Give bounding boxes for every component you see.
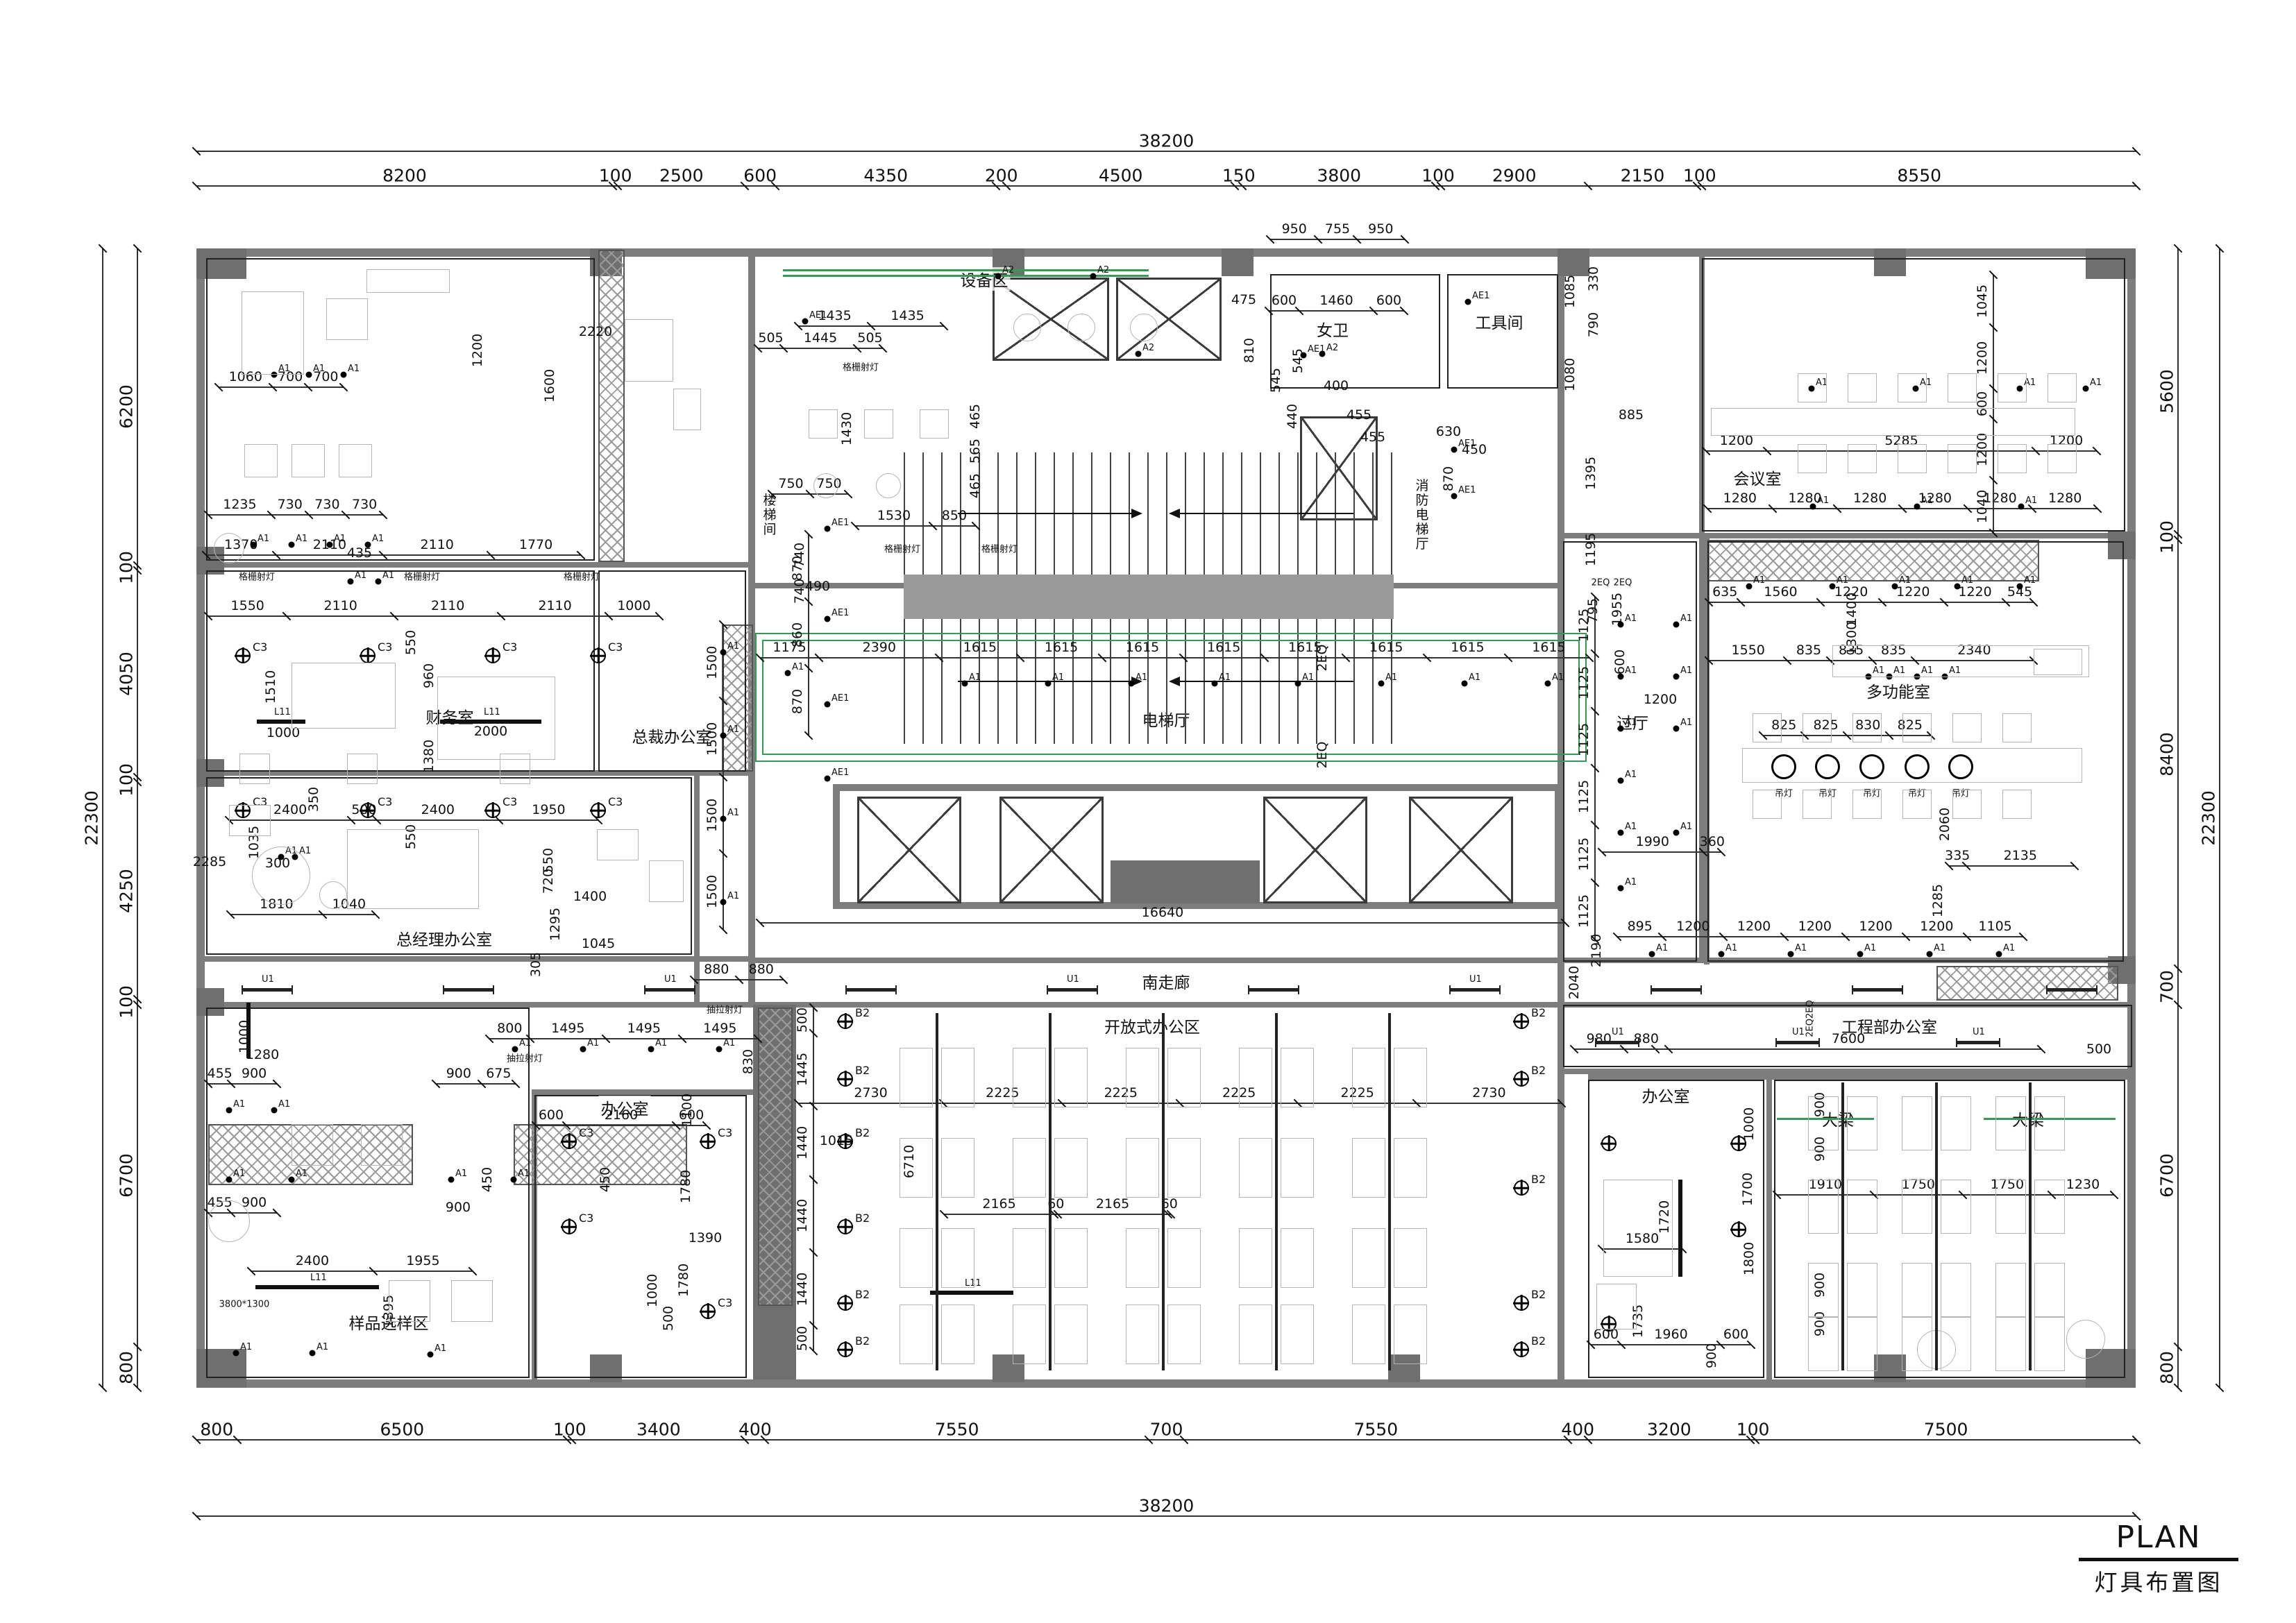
dim-label: 1500	[704, 799, 720, 832]
dim-label: 1615	[1532, 640, 1565, 655]
desk	[1167, 1305, 1201, 1364]
A1-light-icon	[1955, 584, 1961, 590]
wall-segment	[196, 248, 205, 1388]
dim-line	[1574, 1048, 1669, 1050]
desk	[1352, 1228, 1385, 1288]
desk	[1281, 1138, 1314, 1198]
dim-line	[808, 534, 809, 736]
light-code-label: C3	[503, 795, 517, 808]
loose-dim-label: 格栅射灯	[843, 360, 879, 373]
dim-label: 3400	[636, 1420, 681, 1440]
dim-line	[2219, 248, 2220, 1388]
dim-label: 1955	[406, 1253, 439, 1268]
desk	[1239, 1048, 1272, 1107]
strip-light-label: U1	[1973, 1027, 1985, 1037]
desk	[1847, 1180, 1877, 1234]
light-code-label: A1	[1753, 575, 1765, 586]
dim-label: 455	[207, 1066, 232, 1081]
AE1-light-icon	[825, 776, 831, 782]
dim-label: 1125	[1576, 894, 1592, 928]
chair	[2002, 713, 2032, 742]
A1-light-icon	[720, 733, 727, 739]
chair	[1898, 373, 1927, 402]
loose-dim-label: 1295	[548, 908, 563, 941]
furniture	[500, 754, 530, 784]
AE1-light-icon	[825, 526, 831, 532]
chair	[1848, 444, 1877, 473]
desk	[1808, 1180, 1839, 1234]
downlight-light-icon	[1731, 1136, 1746, 1151]
shaft-xbox	[857, 797, 961, 903]
chair	[2002, 790, 2032, 819]
B2-light-icon	[838, 1014, 853, 1029]
chair	[1753, 790, 1782, 819]
light-code-label: C3	[579, 1212, 593, 1225]
strip-light-icon	[444, 988, 493, 992]
dim-label: 800	[200, 1420, 233, 1440]
dim-label: 100	[2157, 520, 2177, 554]
dim-label: 6200	[117, 384, 137, 429]
light-code-label: B2	[855, 1006, 870, 1019]
furniture	[451, 1280, 493, 1322]
room-label: 总裁办公室	[630, 724, 714, 747]
dim-line	[1591, 1344, 1751, 1345]
chair	[1952, 790, 1982, 819]
loose-dim-label: 720	[541, 869, 556, 894]
dim-label: 1040	[1975, 490, 1990, 523]
light-code-label: A1	[727, 724, 739, 735]
chair	[1902, 790, 1932, 819]
wall-segment	[196, 1379, 2136, 1388]
dim-label: 1200	[1737, 919, 1771, 934]
dim-label: 1550	[1732, 643, 1765, 658]
dim-label: 1105	[1978, 919, 2011, 934]
loose-dim-label: 455	[1347, 407, 1371, 423]
dim-label: 1500	[704, 722, 720, 756]
light-code-label: A1	[1725, 943, 1737, 953]
furniture	[1742, 748, 2082, 783]
furniture	[292, 1124, 333, 1166]
A1-light-icon	[289, 1177, 295, 1183]
strip-light-label: U1	[1792, 1027, 1805, 1037]
C3-light-icon	[485, 648, 500, 663]
A1-light-icon	[1830, 584, 1836, 590]
dim-line	[758, 348, 883, 349]
light-code-label: A2	[1097, 265, 1109, 275]
A1-light-icon	[375, 579, 382, 585]
dim-label: 2730	[1472, 1085, 1505, 1101]
C3-light-icon	[360, 648, 375, 663]
light-code-label: B2	[1531, 1064, 1546, 1077]
light-code-label: B2	[855, 1288, 870, 1301]
chair	[2048, 373, 2077, 402]
chair	[1753, 713, 1782, 742]
dim-label: 1200	[1975, 433, 1990, 466]
dim-label: 100	[553, 1420, 586, 1440]
vertical-room-label: 消防电梯厅	[1412, 479, 1431, 552]
loose-dim-label: 500	[2086, 1042, 2111, 1057]
dim-label: 1495	[551, 1021, 584, 1036]
loose-dim-label: 885	[1619, 407, 1644, 423]
wall-segment	[694, 774, 700, 1003]
B2-light-icon	[1514, 1295, 1529, 1311]
chair	[1848, 373, 1877, 402]
desk	[2034, 1317, 2065, 1371]
light-code-label: AE1	[832, 693, 849, 704]
dim-label: 1200	[1975, 341, 1990, 375]
loose-dim-label: 500	[661, 1306, 676, 1331]
loose-dim-label: 抽拉射灯	[507, 1051, 543, 1064]
dim-label: 1125	[1576, 723, 1592, 756]
loose-dim-label: 2EQ	[1614, 578, 1632, 588]
dim-label: 800	[117, 1351, 137, 1384]
light-code-label: AE1	[1472, 291, 1489, 301]
loose-dim-label: 3800*1300	[219, 1300, 270, 1310]
dim-label: 8550	[1897, 166, 1941, 186]
title-block: PLAN 灯具布置图	[2075, 1520, 2242, 1597]
light-code-label: AE1	[1458, 439, 1476, 449]
desk	[1394, 1305, 1427, 1364]
dim-label: 2500	[659, 166, 704, 186]
light-code-label: A1	[355, 570, 366, 581]
B2-light-icon	[1514, 1342, 1529, 1357]
dim-label: 1200	[1676, 919, 1710, 934]
strip-light-icon	[847, 988, 895, 992]
A1-light-icon	[2083, 386, 2089, 392]
desk	[1847, 1263, 1877, 1317]
C3-light-icon	[591, 648, 606, 663]
chair	[1852, 790, 1882, 819]
light-code-label: A1	[723, 1038, 735, 1048]
loose-dim-label: 1100	[679, 1094, 695, 1127]
light-code-label: B2	[855, 1064, 870, 1077]
light-code-label: A1	[278, 1099, 290, 1110]
B2-light-icon	[1514, 1014, 1529, 1029]
dim-label: 730	[278, 497, 303, 512]
dim-label: 100	[599, 166, 632, 186]
loose-dim-label: 1000	[645, 1274, 660, 1307]
A1-light-icon	[1649, 951, 1655, 958]
A1-light-icon	[720, 899, 727, 906]
light-code-label: A1	[1469, 672, 1480, 683]
A1-light-icon	[310, 1350, 316, 1357]
A1-light-icon	[1927, 951, 1933, 958]
desk	[1941, 1263, 1971, 1317]
dim-label: 1440	[795, 1273, 810, 1306]
wall-segment	[532, 1089, 753, 1095]
room-label: 总经理办公室	[394, 926, 494, 950]
loose-dim-label: 960	[421, 663, 437, 688]
desk	[1995, 1096, 2026, 1150]
dim-label: 4250	[117, 869, 137, 913]
desk	[1281, 1305, 1314, 1364]
dim-label: 400	[1561, 1420, 1594, 1440]
A1-light-icon	[233, 1350, 239, 1357]
dim-line	[102, 248, 103, 1388]
dim-label: 200	[985, 166, 1018, 186]
linear-light-icon	[255, 1285, 379, 1289]
dim-label: 1445	[804, 330, 837, 346]
wall-segment	[196, 248, 2136, 257]
light-code-label: A1	[1552, 672, 1564, 683]
stair-arrowhead	[1131, 509, 1142, 518]
A1-light-icon	[1857, 951, 1864, 958]
furniture	[361, 1124, 403, 1166]
dim-label: 900	[242, 1066, 267, 1081]
loose-dim-label: 450	[598, 1167, 613, 1192]
light-code-label: A1	[727, 641, 739, 652]
desk	[1013, 1048, 1046, 1107]
strip-light-icon	[1853, 988, 1902, 992]
dim-label: 2160	[605, 1107, 638, 1123]
dim-line	[1269, 310, 1404, 312]
dim-label: 2110	[431, 598, 464, 613]
floor-plan-canvas: PLAN 灯具布置图 总裁办公室财务室总经理办公室样品选样区办公室会议室多功能室…	[0, 0, 2296, 1623]
dim-line	[1655, 1048, 2041, 1050]
light-code-label: B2	[1531, 1334, 1546, 1348]
B2-light-icon	[838, 1219, 853, 1234]
loose-dim-label: 1085	[1562, 275, 1578, 308]
dim-label: 800	[2157, 1351, 2177, 1384]
furniture	[366, 269, 450, 293]
loose-dim-label: 1510	[263, 670, 278, 704]
light-code-label: A1	[1625, 613, 1637, 624]
light-code-label: A1	[1625, 770, 1637, 780]
AE1-light-icon	[1465, 299, 1471, 305]
loose-dim-label: 1200	[1644, 692, 1677, 707]
A1-light-icon	[226, 1107, 233, 1114]
dim-label: 4050	[117, 652, 137, 696]
dim-line	[760, 657, 1589, 658]
furniture-round	[214, 533, 244, 563]
desk-partition	[1935, 1082, 1938, 1370]
strip-light-icon	[1652, 988, 1700, 992]
furniture-round	[2066, 1320, 2105, 1359]
light-code-label: A1	[1625, 665, 1637, 676]
strip-light-icon	[243, 988, 292, 992]
dim-label: 860	[790, 622, 805, 647]
loose-dim-label: 1395	[1583, 457, 1598, 490]
dim-line	[1993, 275, 1994, 533]
dim-label: 1435	[890, 308, 924, 323]
linear-light-icon	[246, 1003, 251, 1058]
dim-label: 1495	[627, 1021, 661, 1036]
loose-dim-label: 1280	[246, 1047, 279, 1062]
light-code-label: C3	[253, 640, 267, 654]
dim-label: 700	[1150, 1420, 1183, 1440]
loose-dim-label: 2220	[579, 324, 612, 339]
light-code-label: A1	[2090, 377, 2102, 388]
desk	[941, 1048, 974, 1107]
light-code-label: C3	[608, 795, 623, 808]
desk	[1126, 1138, 1159, 1198]
A1-light-icon	[1673, 674, 1680, 680]
light-code-label: C3	[503, 640, 517, 654]
dim-line	[137, 248, 138, 1388]
loose-dim-label: 格栅射灯	[884, 542, 920, 555]
light-code-label: A2	[1002, 265, 1014, 275]
light-code-label: A1	[1864, 943, 1876, 953]
light-code-label: B2	[855, 1212, 870, 1225]
A1-light-icon	[1129, 681, 1135, 687]
dim-label: 1220	[1896, 584, 1930, 600]
loose-dim-label: 抽拉射灯	[707, 1003, 743, 1016]
furniture	[625, 319, 673, 382]
dim-label: 1125	[1576, 837, 1592, 870]
furniture	[339, 444, 372, 477]
area-label: 南走廊	[1140, 969, 1192, 993]
light-code-label: A1	[1219, 672, 1231, 683]
loose-dim-label: 1700	[1740, 1173, 1755, 1206]
dim-line	[219, 386, 344, 388]
dim-label: 675	[486, 1066, 511, 1081]
desk	[1352, 1305, 1385, 1364]
desk-partition	[1049, 1013, 1052, 1370]
stair-arrow	[1180, 513, 1353, 514]
dim-label: 6700	[117, 1154, 137, 1198]
dim-label: 730	[352, 497, 377, 512]
furniture	[809, 409, 838, 439]
hatch-strip	[598, 250, 625, 562]
A1-light-icon	[2017, 584, 2023, 590]
desk	[900, 1228, 933, 1288]
wall-segment	[196, 956, 755, 962]
desk	[1808, 1317, 1839, 1371]
wall-segment	[1588, 1074, 2136, 1080]
furniture	[239, 754, 270, 784]
loose-dim-label: 格栅射灯	[239, 570, 275, 583]
desk	[1054, 1305, 1088, 1364]
A1-light-icon	[1618, 885, 1624, 892]
linear-light-icon	[930, 1291, 1013, 1295]
plan-subtitle: 灯具布置图	[2075, 1564, 2242, 1597]
A1-light-icon	[348, 579, 354, 585]
furniture	[347, 754, 378, 784]
dim-label: 6700	[2157, 1154, 2177, 1198]
A1-light-icon	[1788, 951, 1794, 958]
chair	[1803, 713, 1832, 742]
dim-label: 1530	[877, 508, 911, 523]
AE1-light-icon	[825, 616, 831, 622]
dim-label: 1960	[1654, 1327, 1687, 1342]
dim-label: 1500	[704, 646, 720, 679]
desk	[2034, 1096, 2065, 1150]
A1-light-icon	[1673, 622, 1680, 628]
A1-light-icon	[1045, 681, 1052, 687]
dim-label: 335	[1945, 848, 1970, 863]
dim-label: 2150	[1621, 166, 1665, 186]
desk	[1941, 1317, 1971, 1371]
light-code-label: A1	[1899, 575, 1911, 586]
room-label: 办公室	[1640, 1083, 1692, 1107]
desk	[1808, 1263, 1839, 1317]
dim-label: 7500	[1924, 1420, 1968, 1440]
desk	[1394, 1228, 1427, 1288]
light-code-label: A1	[1921, 495, 1933, 506]
light-code-label: A1	[296, 1169, 307, 1179]
loose-dim-label: 2040	[1567, 966, 1582, 999]
desk	[1013, 1138, 1046, 1198]
dim-label: 1990	[1636, 834, 1669, 849]
wall-segment	[833, 784, 1562, 791]
dim-label: 8200	[382, 166, 427, 186]
hatch-strip	[758, 1008, 793, 1306]
dim-label: 7550	[1354, 1420, 1399, 1440]
desk	[1126, 1048, 1159, 1107]
column-pier	[1558, 248, 1589, 276]
column-pier	[1111, 860, 1260, 903]
chair	[1998, 444, 2027, 473]
dim-label: 1200	[1859, 919, 1892, 934]
light-code-label: A1	[382, 570, 394, 581]
desk	[1054, 1048, 1088, 1107]
furniture	[1711, 408, 2075, 436]
light-code-label: A1	[1052, 672, 1064, 683]
A1-light-icon	[785, 670, 791, 677]
shaft-xbox	[999, 797, 1104, 903]
furniture-round	[208, 1200, 250, 1242]
desk-partition	[1388, 1013, 1391, 1370]
desk	[1902, 1180, 1932, 1234]
dim-label: 600	[1376, 293, 1401, 308]
loose-dim-label: 455	[1360, 430, 1385, 445]
dim-label: 7600	[1832, 1031, 1865, 1046]
light-code-label: C3	[378, 795, 392, 808]
dim-label: 870	[790, 689, 805, 714]
light-code-label: A1	[1680, 665, 1692, 676]
light-code-label: A1	[1625, 877, 1637, 887]
desk	[1281, 1048, 1314, 1107]
desk	[1167, 1228, 1201, 1288]
A1-light-icon	[226, 1177, 233, 1183]
furniture	[244, 444, 278, 477]
A1-light-icon	[1618, 622, 1624, 628]
A1-light-icon	[720, 816, 727, 822]
dim-label: 22300	[82, 790, 102, 846]
light-code-label: A2	[1142, 343, 1154, 353]
dim-line	[208, 615, 659, 617]
wall-segment	[1562, 533, 2136, 538]
light-code-label: A1	[348, 364, 360, 374]
loose-dim-label: 2060	[1937, 808, 1952, 841]
desk	[1808, 1096, 1839, 1150]
light-code-label: A1	[1302, 672, 1314, 683]
light-code-label: A1	[1795, 943, 1807, 953]
furniture	[597, 829, 639, 860]
light-code-label: A1	[1837, 575, 1848, 586]
B2-light-icon	[838, 1295, 853, 1311]
strip-light-icon	[2048, 988, 2096, 992]
light-code-label: A1	[1136, 672, 1147, 683]
desk-partition	[2029, 1082, 2032, 1370]
loose-dim-label: 795	[1585, 598, 1601, 623]
dim-label: 1495	[703, 1021, 736, 1036]
furniture	[347, 829, 479, 909]
furniture	[292, 663, 396, 729]
dim-label: 1000	[617, 598, 650, 613]
dim-label: 1440	[795, 1199, 810, 1232]
A1-light-icon	[1212, 681, 1218, 687]
dim-line	[208, 514, 383, 516]
stair-landing	[904, 575, 1394, 619]
dim-label: 6500	[380, 1420, 425, 1440]
A2-light-icon	[1319, 351, 1326, 357]
dim-label: 7550	[935, 1420, 979, 1440]
strip-light-label: U1	[1469, 974, 1482, 985]
desk	[2034, 1180, 2065, 1234]
AE1-light-icon	[1301, 352, 1307, 359]
loose-dim-label: 1195	[1583, 533, 1598, 566]
